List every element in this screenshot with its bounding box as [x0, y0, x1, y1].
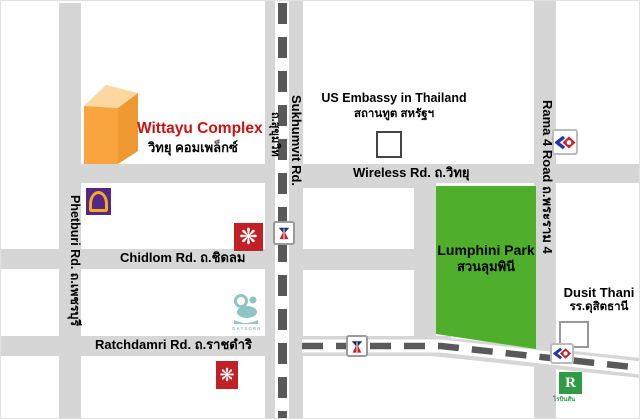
- road-label-wireless-en: Wireless Rd.: [353, 165, 431, 180]
- us-embassy-building-box: [376, 131, 402, 158]
- wittayu-complex-label-en: Wittayu Complex: [137, 120, 263, 137]
- wittayu-complex-building: [82, 80, 140, 165]
- road-label-phetburi-th: ถ.เพชรบุรี: [68, 273, 82, 326]
- bts-logo-glyph: [277, 225, 291, 241]
- road-label-chidlom: Chidlom Rd. ถ.ชิดลม: [120, 251, 245, 265]
- lumphini-park-label-en: Lumphini Park: [436, 243, 536, 258]
- road-label-phetburi: Phetburi Rd. ถ.เพชรบุรี: [69, 195, 82, 326]
- road-label-chidlom-th: ถ.ชิดลม: [200, 250, 245, 265]
- robinson-label: โรบินสัน: [553, 394, 575, 404]
- road-label-wireless: Wireless Rd. ถ.วิทยุ: [353, 166, 470, 180]
- gaysorn-label: GAYSORN: [232, 326, 261, 331]
- mrt-station-icon: [552, 129, 578, 155]
- gaysorn-icon: GAYSORN: [230, 293, 262, 333]
- road-label-rama4-th: ถ.พระราม 4: [540, 186, 555, 254]
- mrt-station-icon: [550, 343, 574, 364]
- central-store-icon: ❋: [234, 223, 263, 251]
- robinson-icon: R: [559, 372, 582, 394]
- bangkok-location-map: Lumphini Park สวนลุมพินี Wittayu Complex…: [0, 0, 640, 419]
- bts-station-icon: [346, 335, 368, 357]
- bts-station-icon: [273, 221, 295, 245]
- gaysorn-logo-glyph: [230, 293, 262, 326]
- central-florette-glyph: ❋: [239, 226, 257, 248]
- bts-logo-glyph: [350, 339, 364, 354]
- us-embassy-label-en: US Embassy in Thailand: [321, 92, 467, 106]
- mrt-logo-glyph: [553, 347, 572, 360]
- road-label-phetburi-en: Phetburi Rd.: [68, 195, 82, 269]
- road-label-chidlom-en: Chidlom Rd.: [120, 250, 197, 265]
- road-label-sukhumvit-th: ถ.สุขุมวิท: [269, 112, 280, 157]
- road-label-sukhumvit-en: Sukhumvit Rd.: [290, 95, 303, 186]
- central-store-icon: ❋: [216, 361, 238, 389]
- road-label-wireless-th: ถ.วิทยุ: [435, 165, 470, 180]
- lumphini-park-label-th: สวนลุมพินี: [436, 260, 536, 274]
- wittayu-complex-label-th: วิทยุ คอมเพล็กซ์: [148, 141, 238, 155]
- dusit-thani-label-en: Dusit Thani: [557, 286, 640, 300]
- road-label-ratchdamri-en: Ratchdamri Rd.: [95, 337, 191, 352]
- scb-lotus-icon: [89, 191, 108, 212]
- scb-bank-icon: [86, 188, 111, 215]
- robinson-logo-glyph: R: [565, 375, 576, 392]
- road-label-ratchdamri: Ratchdamri Rd. ถ.ราชดำริ: [95, 338, 252, 352]
- road-label-rama4: Rama 4 Road ถ.พระราม 4: [541, 100, 554, 254]
- mrt-logo-glyph: [555, 135, 576, 150]
- road-label-ratchdamri-th: ถ.ราชดำริ: [195, 337, 252, 352]
- dusit-thani-label-th: รร.ดุสิตธานี: [557, 301, 640, 314]
- central-florette-glyph: ❋: [219, 366, 234, 384]
- us-embassy-label-th: สถานทูต สหรัฐฯ: [321, 108, 467, 121]
- lumphini-park: Lumphini Park สวนลุมพินี: [436, 186, 536, 349]
